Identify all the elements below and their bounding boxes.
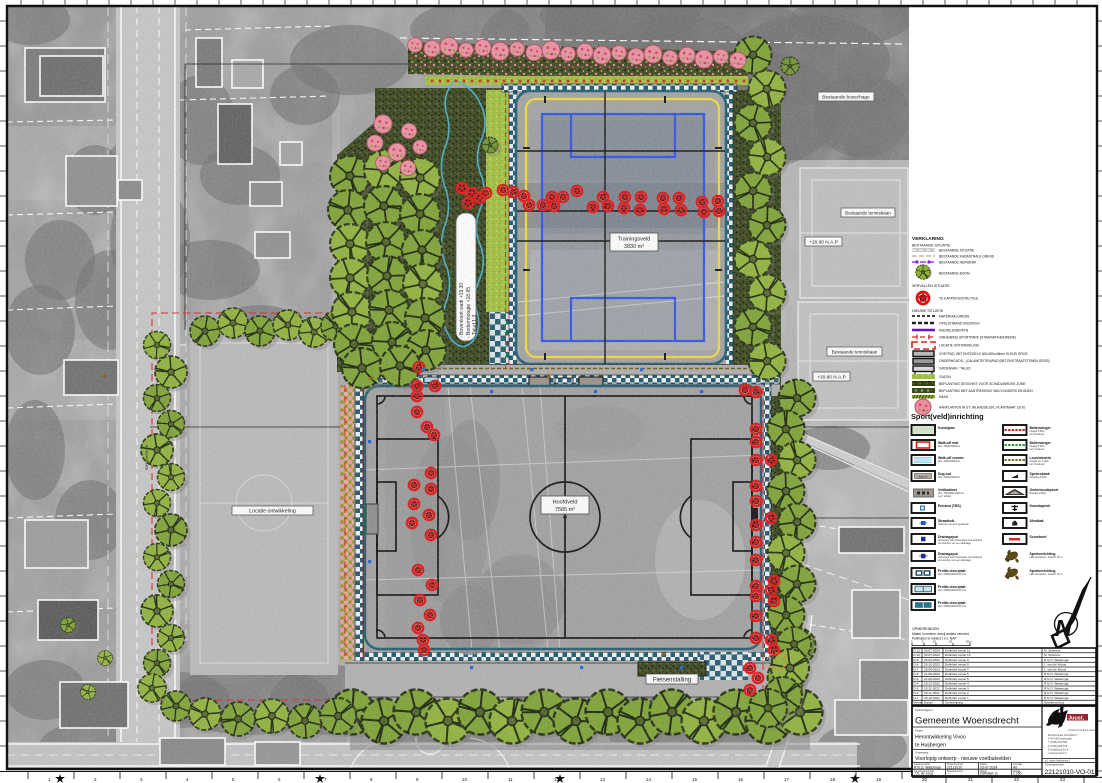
svg-text:GAZON: GAZON <box>939 375 951 379</box>
svg-text:Kunstgras: Kunstgras <box>938 426 955 430</box>
svg-text:D-1: D-1 <box>914 696 919 700</box>
svg-text:F (0165) 820 575: F (0165) 820 575 <box>1048 745 1068 748</box>
svg-text:15-11-2022: 15-11-2022 <box>924 691 940 695</box>
svg-text:Definitief versie 1: Definitief versie 1 <box>945 696 969 700</box>
svg-text:T (0165) 820 530: T (0165) 820 530 <box>1048 741 1068 744</box>
svg-text:Definitief versie 11: Definitief versie 11 <box>945 648 970 652</box>
svg-text:R.N.O. Wateringa: R.N.O. Wateringa <box>1044 696 1069 700</box>
svg-text:1:250: 1:250 <box>1013 771 1022 775</box>
svg-text:a 1 meter hoekversie 1: a 1 meter hoekversie 1 <box>1045 760 1071 763</box>
svg-text:Omschrijving: Omschrijving <box>945 701 963 705</box>
svg-text:D-10: D-10 <box>914 653 921 657</box>
svg-text:D-11: D-11 <box>914 648 921 652</box>
svg-text:BESTAANDE BOOM: BESTAANDE BOOM <box>939 272 970 276</box>
svg-text:13: 13 <box>600 777 606 782</box>
svg-text:OPSLUITBAND 60x200mm: OPSLUITBAND 60x200mm <box>939 322 980 326</box>
svg-text:afm. 4000x2000mm: afm. 4000x2000mm <box>938 445 960 448</box>
svg-text:Voorlopig ontwerp - nieuwe voe: Voorlopig ontwerp - nieuwe voetbalvelden <box>915 756 1011 762</box>
svg-text:23: 23 <box>1060 777 1066 782</box>
svg-text:OMHEINING SPORTPARK (STAAFMATH: OMHEINING SPORTPARK (STAAFMATHEKWERK) <box>939 336 1016 340</box>
svg-text:Definitief versie 10: Definitief versie 10 <box>945 653 971 657</box>
svg-text:Definitief versie 8: Definitief versie 8 <box>945 663 969 667</box>
svg-text:L. van de Wouw: L. van de Wouw <box>1044 667 1067 671</box>
svg-text:18: 18 <box>830 777 836 782</box>
svg-text:NIEUWE SITUATIE: NIEUWE SITUATIE <box>912 309 944 313</box>
svg-text:16: 16 <box>738 777 744 782</box>
svg-text:I www.juust-bv.nl: I www.juust-bv.nl <box>1048 752 1067 755</box>
svg-text:21-08-2023: 21-08-2023 <box>924 672 940 676</box>
svg-text:HAAG: HAAG <box>939 395 949 399</box>
svg-text:03-07-2024: 03-07-2024 <box>924 653 940 657</box>
svg-text:ONDERHOUDS-, (CALAMITEITEN)PAD: ONDERHOUDS-, (CALAMITEITEN)PAD (BETONSTR… <box>939 359 1050 363</box>
svg-text:15-12-2022: 15-12-2022 <box>924 682 940 686</box>
svg-text:Afvalbak: Afvalbak <box>1030 519 1044 523</box>
svg-text:incl. funderen: incl. funderen <box>1030 448 1046 451</box>
svg-text:Definitief versie 2: Definitief versie 2 <box>945 691 969 695</box>
svg-text:BESTAANDE SITUATIE: BESTAANDE SITUATIE <box>939 249 975 253</box>
svg-text:Definitief versie 3: Definitief versie 3 <box>945 686 969 690</box>
svg-text:excl. sokkel: excl. sokkel <box>938 495 951 498</box>
svg-text:M. Splinters: M. Splinters <box>1044 653 1061 657</box>
svg-text:Herontwikkeling Vivoo: Herontwikkeling Vivoo <box>915 735 966 741</box>
svg-text:D-9: D-9 <box>914 658 919 662</box>
svg-text:Definitief versie 6: Definitief versie 6 <box>945 672 969 676</box>
svg-text:Tekeningnummer: Tekeningnummer <box>1045 764 1064 767</box>
svg-text:L. van de Wouw: L. van de Wouw <box>1044 663 1067 667</box>
svg-text:15: 15 <box>949 640 953 644</box>
svg-text:D-3: D-3 <box>914 686 919 690</box>
svg-text:afm. 4000x2000mm: afm. 4000x2000mm <box>938 476 960 479</box>
svg-text:KEERELEMENTEN: KEERELEMENTEN <box>939 329 969 333</box>
svg-text:Versie: Versie <box>914 701 923 705</box>
svg-text:afm. 2000x2000x160 mm: afm. 2000x2000x160 mm <box>938 605 966 608</box>
svg-text:te Huijbergen: te Huijbergen <box>915 743 946 749</box>
svg-text:N: N <box>1055 615 1072 641</box>
svg-text:Bedrijvenpark Noordland 7: Bedrijvenpark Noordland 7 <box>1048 734 1078 737</box>
svg-text:Sport(veld)inrichting: Sport(veld)inrichting <box>911 412 984 421</box>
svg-text:BESTAANDE SITUATIE: BESTAANDE SITUATIE <box>912 244 951 248</box>
svg-text:VERVALLEN SITUATIE: VERVALLEN SITUATIE <box>912 284 950 288</box>
svg-text:afm. 4000x2000mm: afm. 4000x2000mm <box>938 460 960 463</box>
svg-text:Definitief versie 7: Definitief versie 7 <box>945 667 969 671</box>
svg-text:TE KAPPEN BOOM (70st): TE KAPPEN BOOM (70st) <box>939 297 978 301</box>
svg-text:R.N.O. Wateringa: R.N.O. Wateringa <box>1044 682 1069 686</box>
svg-text:incl. funderen: incl. funderen <box>1030 433 1046 436</box>
svg-text:Scorebord: Scorebord <box>1030 535 1047 539</box>
svg-text:Doorstaphek: Doorstaphek <box>1030 504 1051 508</box>
svg-text:Definitief versie 4: Definitief versie 4 <box>945 682 969 686</box>
svg-text:20m: 20m <box>966 640 972 644</box>
svg-text:Onderwerp: Onderwerp <box>915 751 929 755</box>
svg-text:21: 21 <box>968 777 974 782</box>
svg-text:Maten in meters, tenzij anders: Maten in meters, tenzij anders vermeld <box>912 632 969 636</box>
svg-text:R.N.O. Wateringa: R.N.O. Wateringa <box>1044 686 1069 690</box>
svg-text:15-11-2022: 15-11-2022 <box>924 686 940 690</box>
svg-text:22121010-VO-01: 22121010-VO-01 <box>1045 769 1095 776</box>
svg-text:Breedte 4.00m: Breedte 4.00m <box>1030 492 1046 495</box>
svg-text:22: 22 <box>1014 777 1020 782</box>
svg-text:Datum: Datum <box>924 701 934 705</box>
svg-text:Opdrachtgever: Opdrachtgever <box>915 708 933 712</box>
svg-text:19: 19 <box>876 777 882 782</box>
svg-text:incl. funderen: incl. funderen <box>1030 463 1046 466</box>
svg-text:BEPLANTING GESCHIKT VOOR SCHAD: BEPLANTING GESCHIKT VOOR SCHADUWRIJKE ZO… <box>939 382 1026 386</box>
svg-text:21-06-2023: 21-06-2023 <box>924 677 940 681</box>
svg-text:D-7: D-7 <box>914 667 919 671</box>
svg-text:D-8: D-8 <box>914 663 919 667</box>
svg-text:15: 15 <box>692 777 698 782</box>
svg-text:Getekend door: Getekend door <box>1044 701 1064 705</box>
svg-text:D-6: D-6 <box>914 672 919 676</box>
svg-text:Gemeente Woensdrecht: Gemeente Woensdrecht <box>915 716 1019 727</box>
svg-text:Definitief versie 5: Definitief versie 5 <box>945 677 969 681</box>
svg-text:VOETPAD, BETONTEGELS 300x300x4: VOETPAD, BETONTEGELS 300x300x45mm KLEUR … <box>939 352 1028 356</box>
svg-text:uit voorzien van een drainage: uit voorzien van een drainage <box>938 542 971 545</box>
svg-text:---: --- <box>947 771 950 775</box>
svg-text:afm. 2000x2000x160 mm: afm. 2000x2000x160 mm <box>938 589 966 592</box>
svg-text:D-5: D-5 <box>914 677 919 681</box>
svg-text:14: 14 <box>646 777 652 782</box>
svg-text:Civiele techniek & advies: Civiele techniek & advies <box>1068 728 1098 732</box>
svg-text:BEPLANTING MET AANTREKKING VAN: BEPLANTING MET AANTREKKING VAN VLINDERS … <box>939 389 1033 393</box>
svg-text:dug-out: dug-out <box>919 474 928 478</box>
svg-text:R.N.O. Wateringa: R.N.O. Wateringa <box>1044 672 1069 676</box>
svg-text:Definitief-11: Definitief-11 <box>980 771 998 775</box>
svg-text:LED armaturen, masten 18 m.: LED armaturen, masten 18 m. <box>1030 556 1064 559</box>
svg-text:BESTAANDE KADASTRALE GRENS: BESTAANDE KADASTRALE GRENS <box>939 255 995 259</box>
svg-text:11: 11 <box>508 777 513 782</box>
svg-text:Putrand (TBS): Putrand (TBS) <box>938 504 961 508</box>
svg-text:Project: Project <box>915 729 924 733</box>
svg-text:E info@juust-bv.nl: E info@juust-bv.nl <box>1048 748 1069 751</box>
svg-text:AANPLANTEN IN ST. INLANDSE EIK: AANPLANTEN IN ST. INLANDSE EIK, PLANTMAA… <box>939 406 1025 410</box>
svg-text:R.N.O. Wateringa: R.N.O. Wateringa <box>1044 658 1069 662</box>
svg-text:afm. 2000x2000x160 mm: afm. 2000x2000x160 mm <box>938 573 966 576</box>
svg-text:VERKLARING: VERKLARING <box>912 236 944 242</box>
svg-text:R.N.O. Wateringa: R.N.O. Wateringa <box>1044 691 1069 695</box>
svg-text:MATERIAALGRENS: MATERIAALGRENS <box>939 315 970 319</box>
svg-text:Afmeting 5.00m: Afmeting 5.00m <box>1030 476 1048 479</box>
svg-text:20: 20 <box>922 777 928 782</box>
svg-text:17: 17 <box>784 777 790 782</box>
svg-text:D-4: D-4 <box>914 682 919 686</box>
svg-text:GROENVAK / TALUD: GROENVAK / TALUD <box>939 367 971 371</box>
svg-text:D-2: D-2 <box>914 691 919 695</box>
svg-text:10: 10 <box>933 640 937 644</box>
svg-text:R.N.O. Wateringa: R.N.O. Wateringa <box>1044 677 1069 681</box>
svg-text:Definitief versie 9: Definitief versie 9 <box>945 658 969 662</box>
svg-text:LED armaturen, masten 15 m.: LED armaturen, masten 15 m. <box>1030 573 1064 576</box>
svg-text:OPMERKINGEN: OPMERKINGEN <box>912 627 939 631</box>
svg-text:BESTAANDE HEKWERK: BESTAANDE HEKWERK <box>939 261 977 265</box>
svg-text:4724 SB Roosendaal: 4724 SB Roosendaal <box>1048 738 1072 741</box>
svg-text:25-10-2023: 25-10-2023 <box>924 663 940 667</box>
svg-text:Voorzien van een opzetstuk: Voorzien van een opzetstuk <box>938 523 969 526</box>
svg-text:10: 10 <box>462 777 468 782</box>
svg-text:03-07-2024: 03-07-2024 <box>924 648 940 652</box>
svg-text:uit voorzien van een drainage: uit voorzien van een drainage <box>938 559 971 562</box>
svg-text:Juust.: Juust. <box>1068 716 1085 722</box>
svg-text:M. Splinters: M. Splinters <box>1044 648 1061 652</box>
svg-text:26-06-2024: 26-06-2024 <box>924 658 940 662</box>
svg-text:LOCATIE ONTWIKKELING: LOCATIE ONTWIKKELING <box>939 344 979 348</box>
svg-text:J.S. de Jong: J.S. de Jong <box>914 771 933 775</box>
svg-text:25-10-2022: 25-10-2022 <box>924 696 940 700</box>
svg-text:25-09-2023: 25-09-2023 <box>924 667 940 671</box>
